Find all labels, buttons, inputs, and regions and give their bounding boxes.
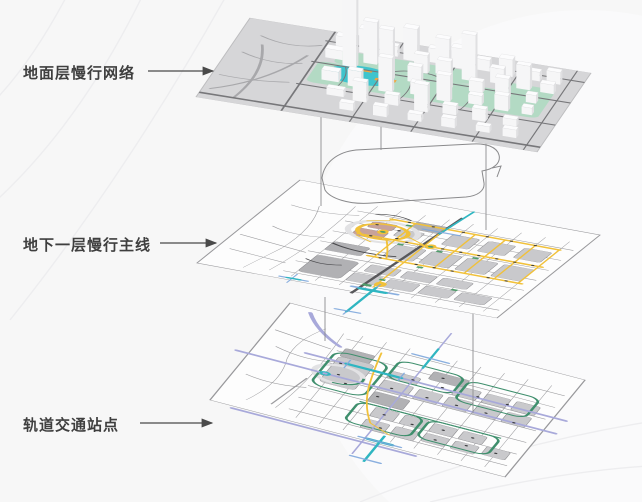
exploded-layers-diagram: 地面层慢行网络 地下一层慢行主线 轨道交通站点 — [0, 0, 642, 502]
label-ground-network: 地面层慢行网络 — [23, 62, 135, 83]
label-rail-stations: 轨道交通站点 — [23, 414, 119, 435]
label-underground-mainline: 地下一层慢行主线 — [23, 234, 151, 255]
